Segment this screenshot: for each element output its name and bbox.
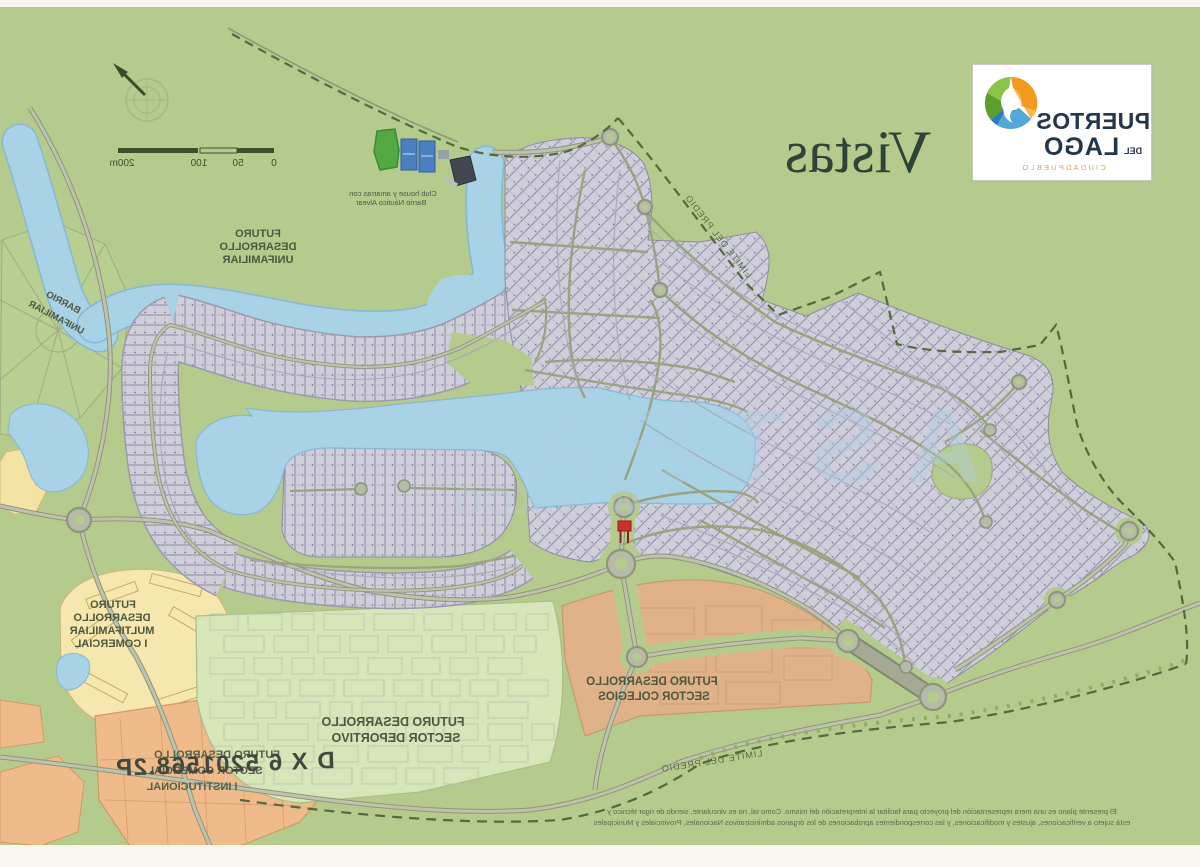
svg-text:I COMERCIAL: I COMERCIAL [74, 638, 147, 650]
svg-text:FUTURO DESARROLLO: FUTURO DESARROLLO [321, 715, 464, 729]
svg-text:LAGO: LAGO [1043, 133, 1119, 161]
svg-text:DEL: DEL [1123, 146, 1142, 156]
svg-text:FUTURO DESARROLLO: FUTURO DESARROLLO [586, 676, 718, 688]
svg-text:DESARROLLO: DESARROLLO [219, 241, 296, 253]
svg-text:MULTIFAMILIAR: MULTIFAMILIAR [70, 625, 155, 637]
svg-text:CIUDADPUEBLO: CIUDADPUEBLO [1020, 163, 1106, 172]
svg-text:200m: 200m [109, 158, 134, 169]
svg-text:FUTURO: FUTURO [235, 228, 281, 240]
svg-text:UNIFAMILIAR: UNIFAMILIAR [223, 254, 294, 266]
svg-text:SECTOR DEPORTIVO: SECTOR DEPORTIVO [331, 731, 460, 745]
svg-text:FUTURO: FUTURO [90, 599, 136, 611]
svg-text:100: 100 [190, 158, 207, 169]
svg-text:Club house y amarras con: Club house y amarras con [349, 189, 437, 198]
svg-text:Barrio Náutico Alvear: Barrio Náutico Alvear [355, 198, 426, 207]
svg-text:SECTOR COLEGIOS: SECTOR COLEGIOS [598, 691, 710, 703]
svg-text:0: 0 [271, 158, 277, 169]
svg-text:Vistas: Vistas [785, 119, 931, 185]
svg-text:DESARROLLO: DESARROLLO [73, 612, 150, 624]
svg-text:WVEXCO: WVEXCO [449, 481, 642, 523]
svg-text:El presente plano es una mera: El presente plano es una mera representa… [607, 807, 1117, 816]
svg-text:I INSTITUCIONAL: I INSTITUCIONAL [146, 781, 237, 793]
svg-text:50: 50 [232, 158, 244, 169]
svg-text:PUERTOS: PUERTOS [1036, 108, 1150, 134]
svg-text:está sujeto a verificaciones,: está sujeto a verificaciones, ajustes y … [593, 818, 1130, 827]
